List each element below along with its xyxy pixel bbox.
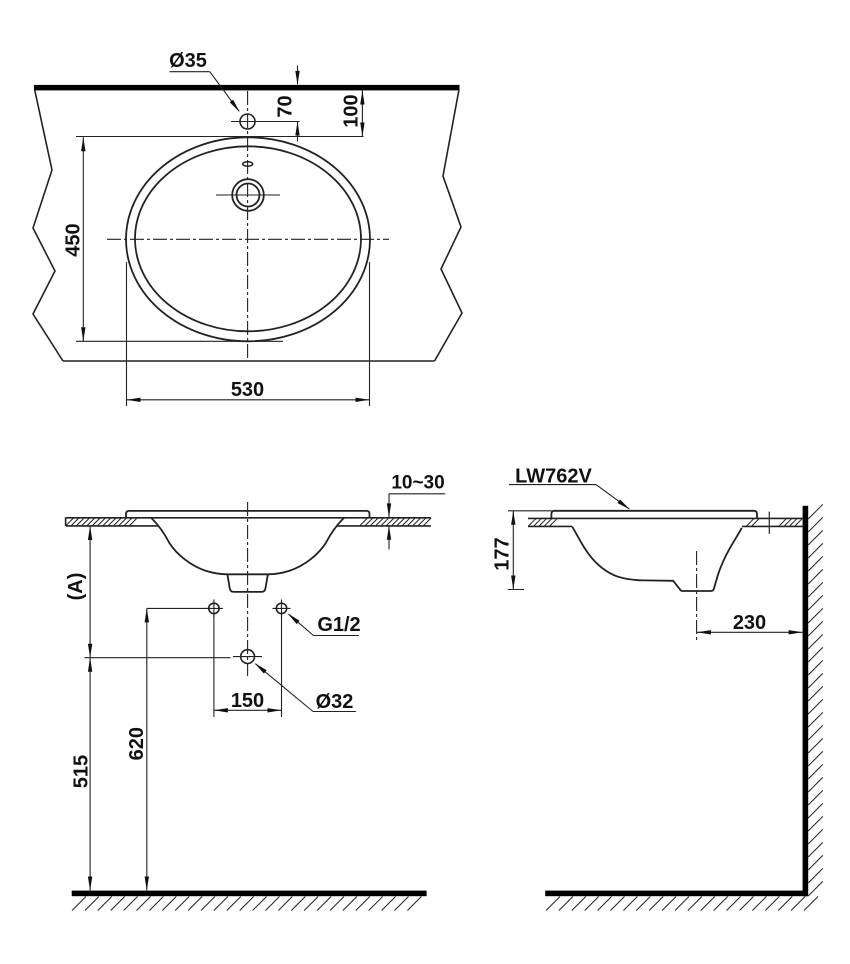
svg-text:10~30: 10~30	[391, 473, 444, 494]
svg-text:(A): (A)	[65, 573, 87, 601]
svg-text:Ø35: Ø35	[169, 50, 207, 72]
svg-text:177: 177	[492, 537, 514, 570]
svg-text:230: 230	[733, 612, 766, 634]
svg-text:530: 530	[231, 379, 264, 401]
svg-text:515: 515	[71, 755, 93, 788]
svg-text:450: 450	[63, 223, 85, 256]
svg-text:620: 620	[126, 727, 148, 760]
svg-text:150: 150	[231, 690, 264, 712]
svg-text:Ø32: Ø32	[316, 691, 354, 713]
svg-text:70: 70	[275, 95, 297, 117]
svg-text:G1/2: G1/2	[317, 614, 360, 636]
svg-text:100: 100	[341, 94, 363, 127]
